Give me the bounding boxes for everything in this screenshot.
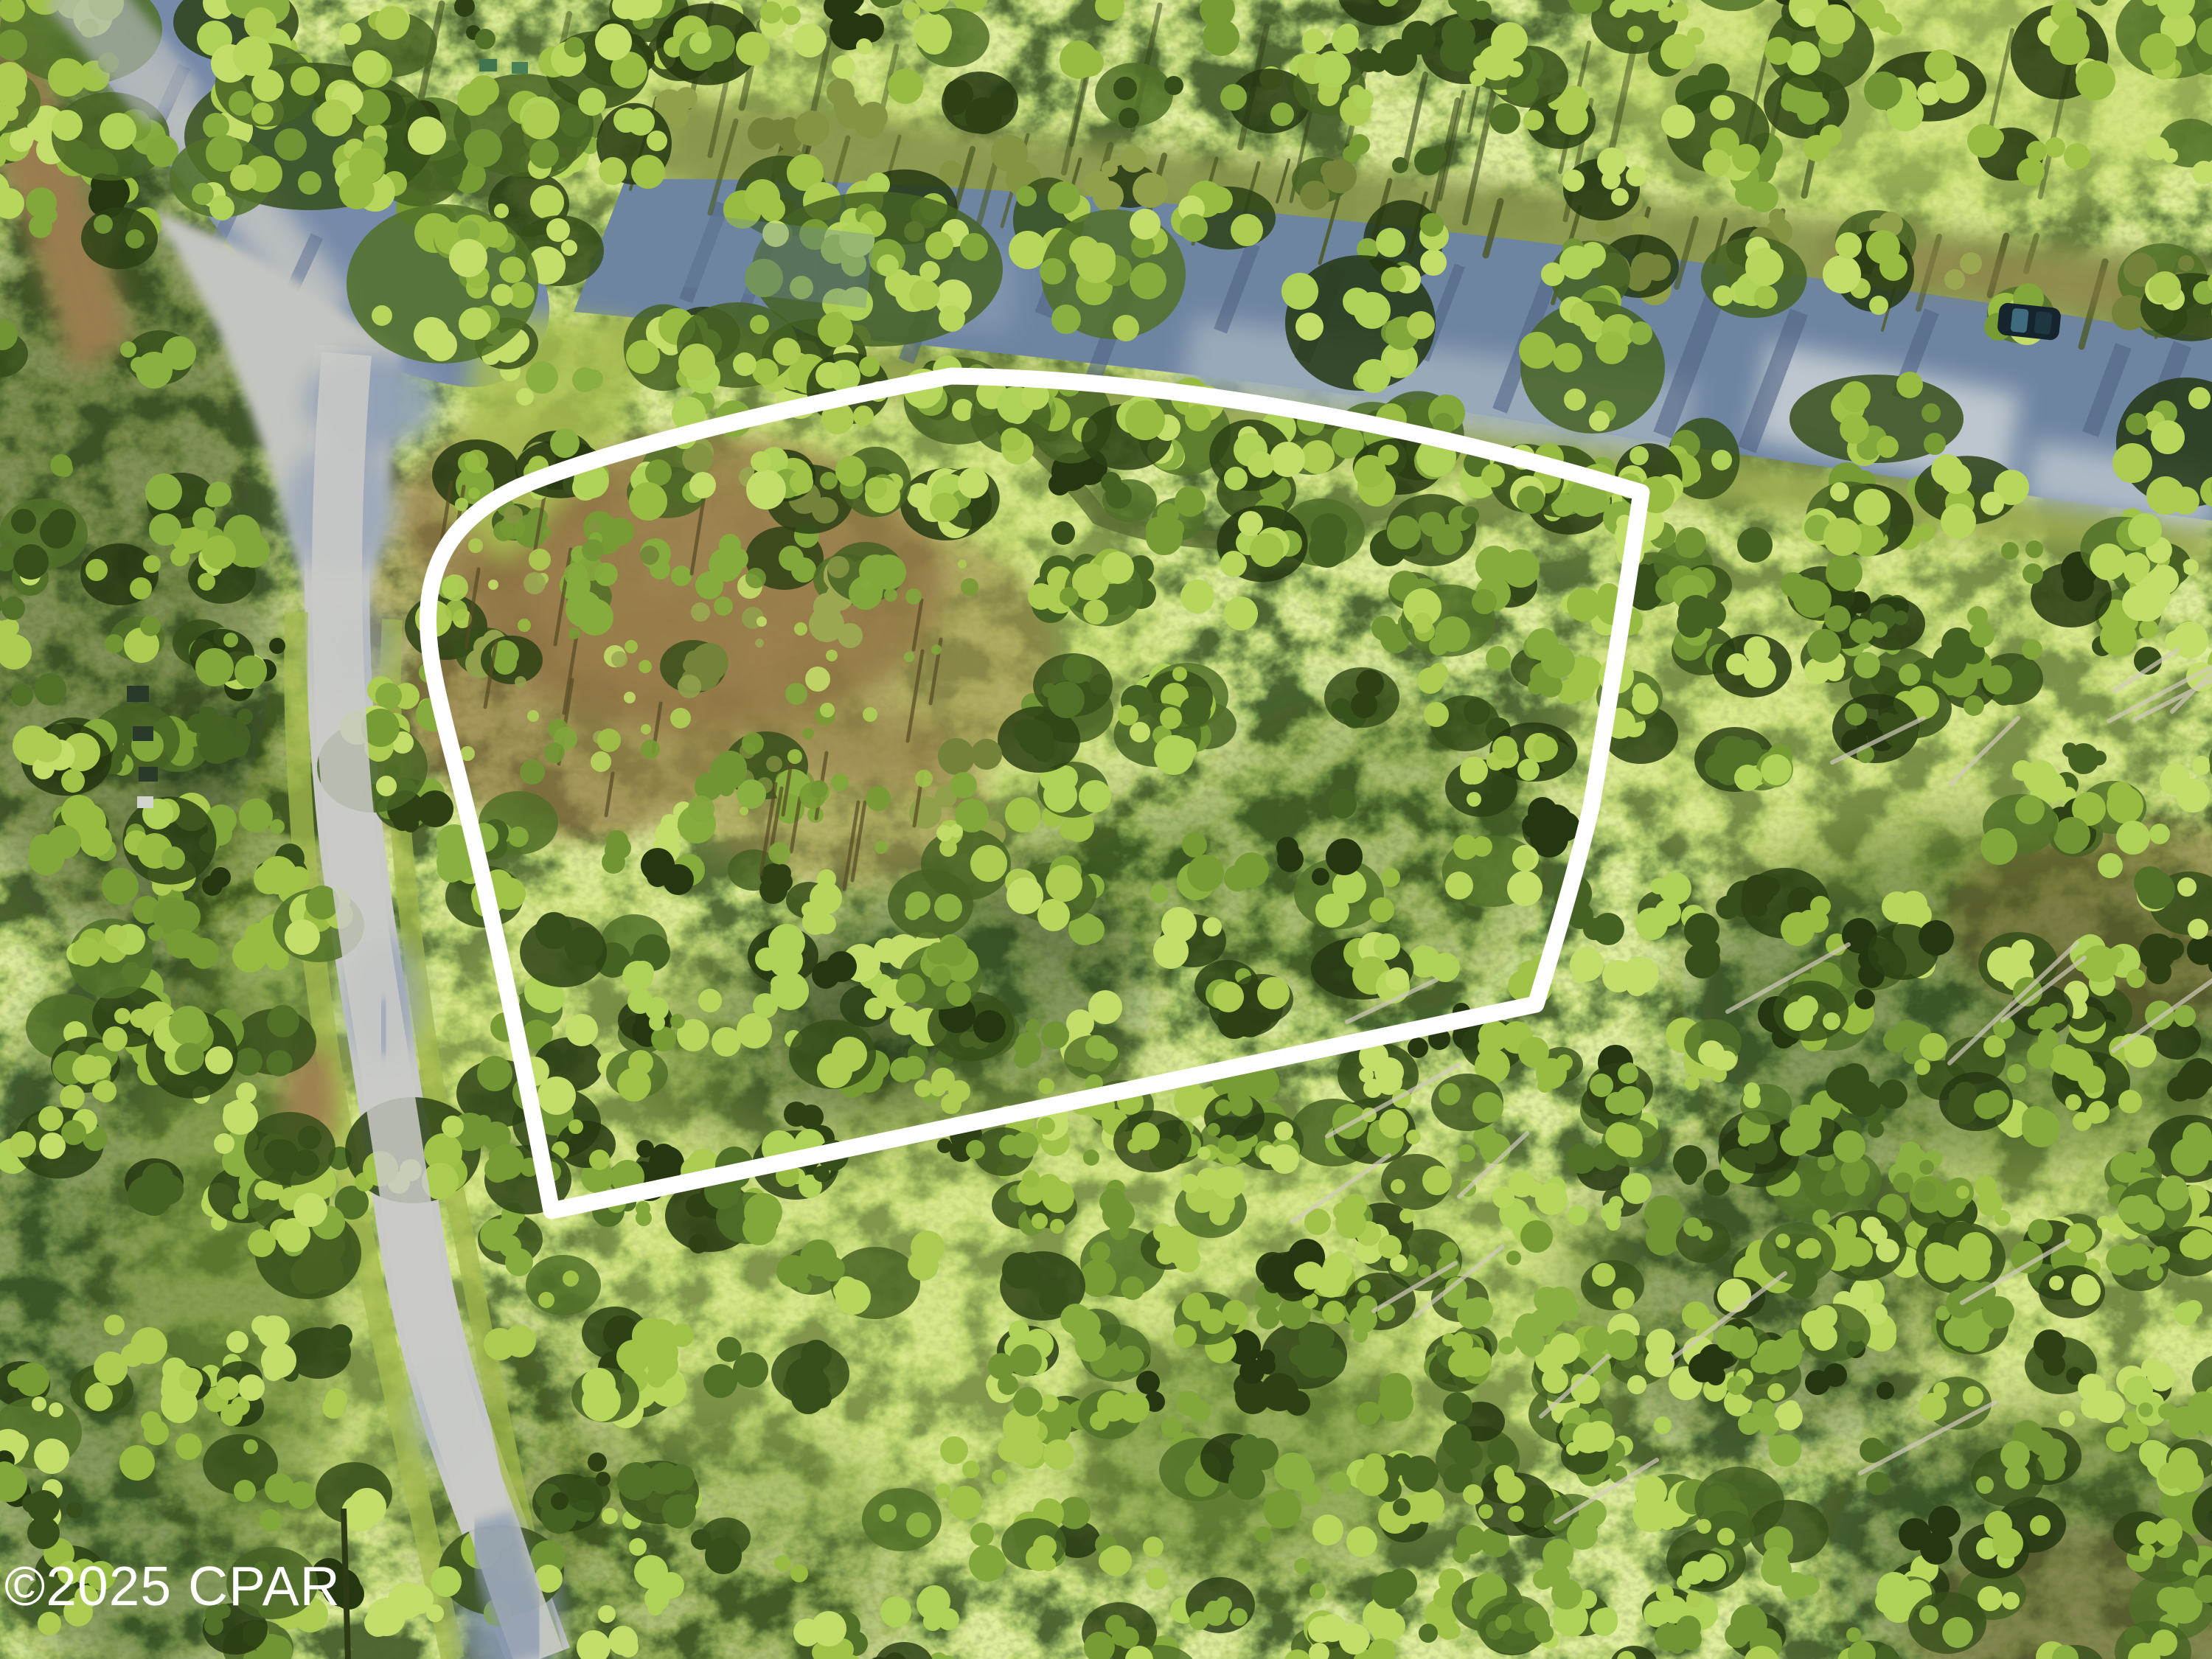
svg-text:©2025 CPAR: ©2025 CPAR [4,1555,341,1617]
